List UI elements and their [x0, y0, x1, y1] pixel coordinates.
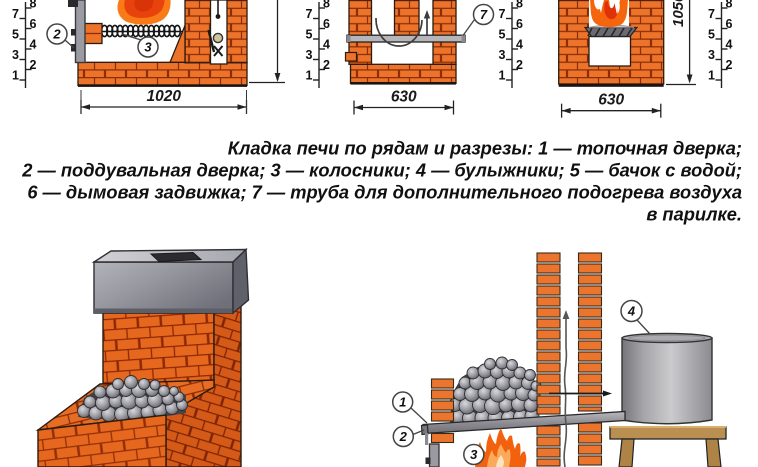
svg-text:7: 7 [708, 7, 715, 21]
svg-text:7: 7 [306, 7, 313, 21]
svg-text:3: 3 [306, 48, 313, 62]
svg-text:630: 630 [598, 92, 624, 109]
svg-text:8: 8 [323, 0, 330, 11]
svg-text:1020: 1020 [147, 88, 182, 105]
svg-text:5: 5 [306, 28, 313, 42]
svg-text:1050: 1050 [670, 0, 687, 27]
svg-text:6: 6 [726, 17, 733, 31]
svg-text:1: 1 [306, 69, 313, 83]
svg-text:2 — поддувальная дверка; 3 — к: 2 — поддувальная дверка; 3 — колосники; … [21, 160, 742, 181]
svg-text:2: 2 [52, 27, 61, 42]
svg-text:4: 4 [726, 38, 733, 52]
svg-text:2: 2 [399, 429, 408, 444]
svg-text:6: 6 [30, 17, 37, 31]
svg-text:1: 1 [399, 395, 406, 410]
svg-text:5: 5 [708, 28, 715, 42]
svg-text:5: 5 [12, 28, 19, 42]
svg-text:8: 8 [516, 0, 523, 11]
svg-text:7: 7 [499, 7, 506, 21]
svg-text:2: 2 [516, 58, 523, 72]
svg-text:3: 3 [470, 447, 478, 462]
svg-text:7: 7 [480, 7, 488, 22]
svg-text:3: 3 [708, 48, 715, 62]
svg-text:Кладка печи по рядам и разрезы: Кладка печи по рядам и разрезы: 1 — топо… [228, 138, 742, 159]
svg-text:1: 1 [12, 69, 19, 83]
svg-text:в парилке.: в парилке. [646, 204, 742, 225]
svg-text:3: 3 [12, 48, 19, 62]
svg-text:5: 5 [499, 28, 506, 42]
svg-text:6: 6 [323, 17, 330, 31]
svg-text:4: 4 [30, 38, 37, 52]
svg-text:6 — дымовая задвижка; 7 — труб: 6 — дымовая задвижка; 7 — труба для допо… [27, 182, 742, 203]
svg-text:4: 4 [516, 38, 523, 52]
svg-text:3: 3 [499, 48, 506, 62]
svg-text:630: 630 [391, 89, 417, 106]
svg-text:2: 2 [323, 58, 330, 72]
svg-text:4: 4 [323, 38, 330, 52]
svg-text:1: 1 [499, 69, 506, 83]
svg-text:2: 2 [726, 58, 733, 72]
svg-text:1: 1 [708, 69, 715, 83]
svg-text:8: 8 [30, 0, 37, 11]
svg-text:7: 7 [12, 7, 19, 21]
svg-text:2: 2 [30, 58, 37, 72]
svg-text:3: 3 [144, 40, 152, 55]
svg-text:4: 4 [627, 304, 636, 319]
svg-text:6: 6 [516, 17, 523, 31]
svg-text:8: 8 [726, 0, 733, 11]
